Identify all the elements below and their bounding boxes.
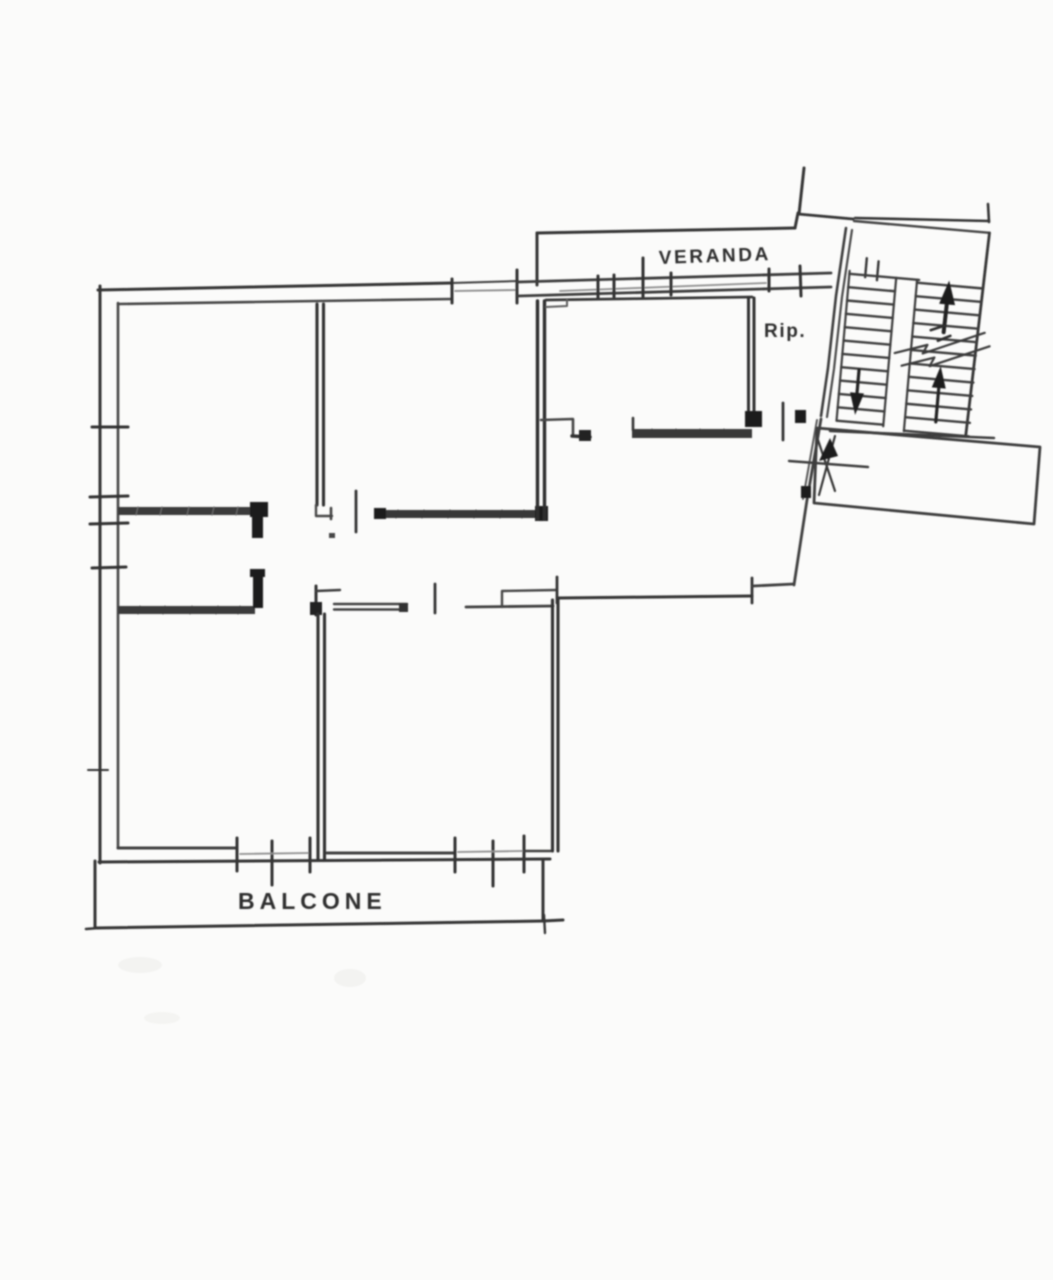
svg-text:BALCONE: BALCONE bbox=[238, 888, 387, 914]
svg-text:VERANDA: VERANDA bbox=[658, 244, 771, 269]
svg-text:Rip.: Rip. bbox=[764, 321, 806, 342]
